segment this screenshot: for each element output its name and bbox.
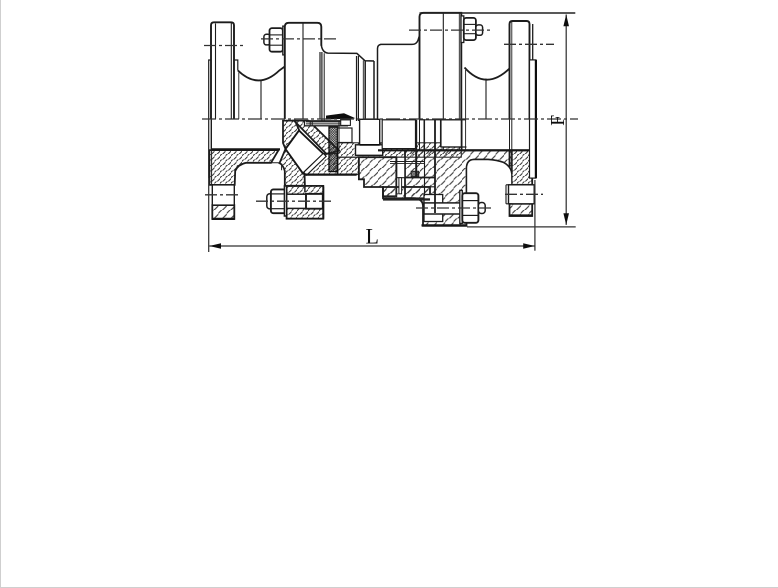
svg-text:L: L xyxy=(366,224,379,249)
svg-text:F: F xyxy=(547,115,569,126)
